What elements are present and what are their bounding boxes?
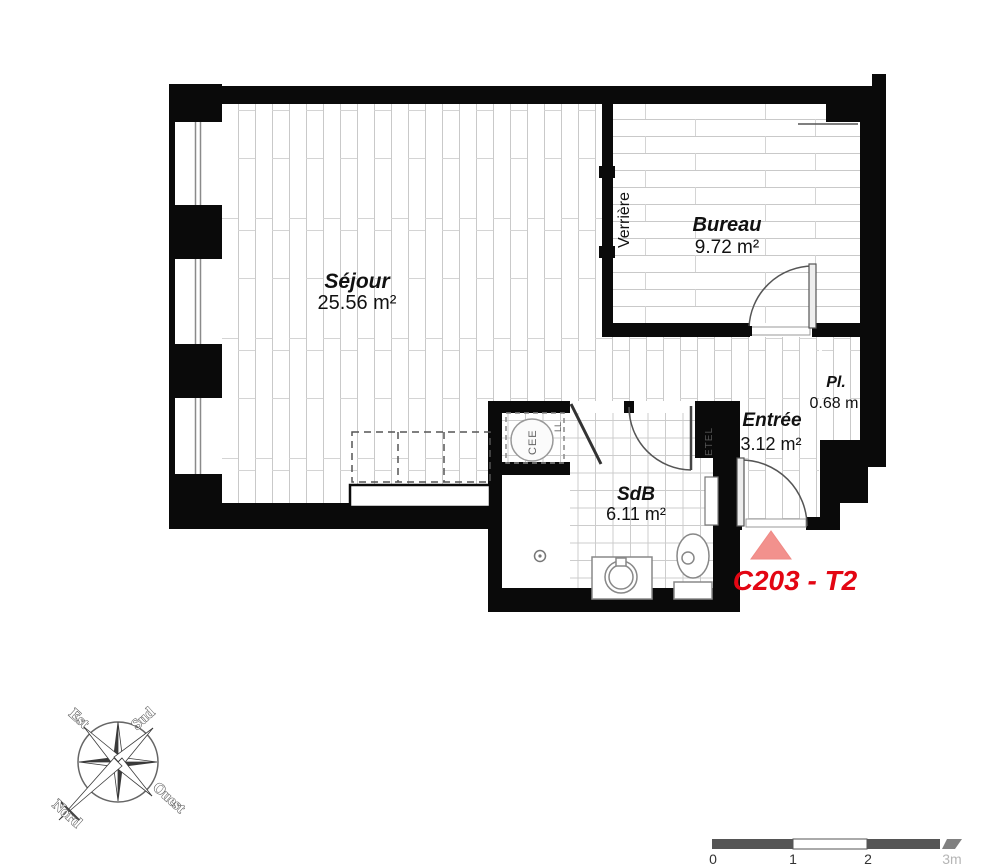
scale-bar: 0 1 2 3m [709, 839, 962, 867]
shower-area [502, 475, 570, 588]
window-3 [175, 398, 222, 474]
window-1 [175, 122, 222, 205]
room-name-placard: Pl. [826, 374, 846, 391]
scale-tick-0: 0 [709, 851, 717, 867]
compass-rose-icon: Est Sud Ouest Nord [49, 704, 188, 831]
sejour-ledge [350, 485, 490, 507]
toilet [674, 534, 712, 599]
scale-end-label: 3m [942, 851, 961, 867]
compass-east-label: Est [66, 706, 92, 732]
window-2 [175, 259, 222, 344]
compass-south-label: Sud [129, 704, 159, 733]
compass-west-label: Ouest [149, 780, 188, 817]
room-area-entree: 3.12 m² [740, 434, 801, 454]
floor-plan-canvas: Séjour 25.56 m² Bureau 9.72 m² SdB 6.11 … [0, 0, 986, 868]
room-name-bureau: Bureau [693, 214, 762, 236]
bathroom-wall-panel [705, 477, 718, 525]
windows [175, 122, 222, 474]
unit-label: C203 - T2 [733, 565, 858, 596]
etel-label: ETEL [704, 427, 715, 456]
scale-tick-1: 1 [789, 851, 797, 867]
floor-plan-page: Séjour 25.56 m² Bureau 9.72 m² SdB 6.11 … [0, 0, 986, 868]
verriere-label: Verrière [616, 192, 633, 248]
water-heater-label: CEE [527, 429, 539, 455]
scale-tick-2: 2 [864, 851, 872, 867]
room-area-bureau: 9.72 m² [695, 237, 759, 258]
room-area-sdb: 6.11 m² [606, 504, 666, 524]
room-area-placard: 0.68 m [810, 395, 859, 412]
washer-label: LL [553, 422, 563, 432]
room-name-sejour: Séjour [324, 270, 391, 293]
unit-marker-triangle-icon [751, 531, 791, 559]
room-name-sdb: SdB [617, 484, 655, 505]
sink-vanity [592, 557, 652, 599]
unit-marker: C203 - T2 [733, 531, 858, 596]
room-name-entree: Entrée [742, 410, 802, 431]
room-area-sejour: 25.56 m² [318, 292, 397, 314]
